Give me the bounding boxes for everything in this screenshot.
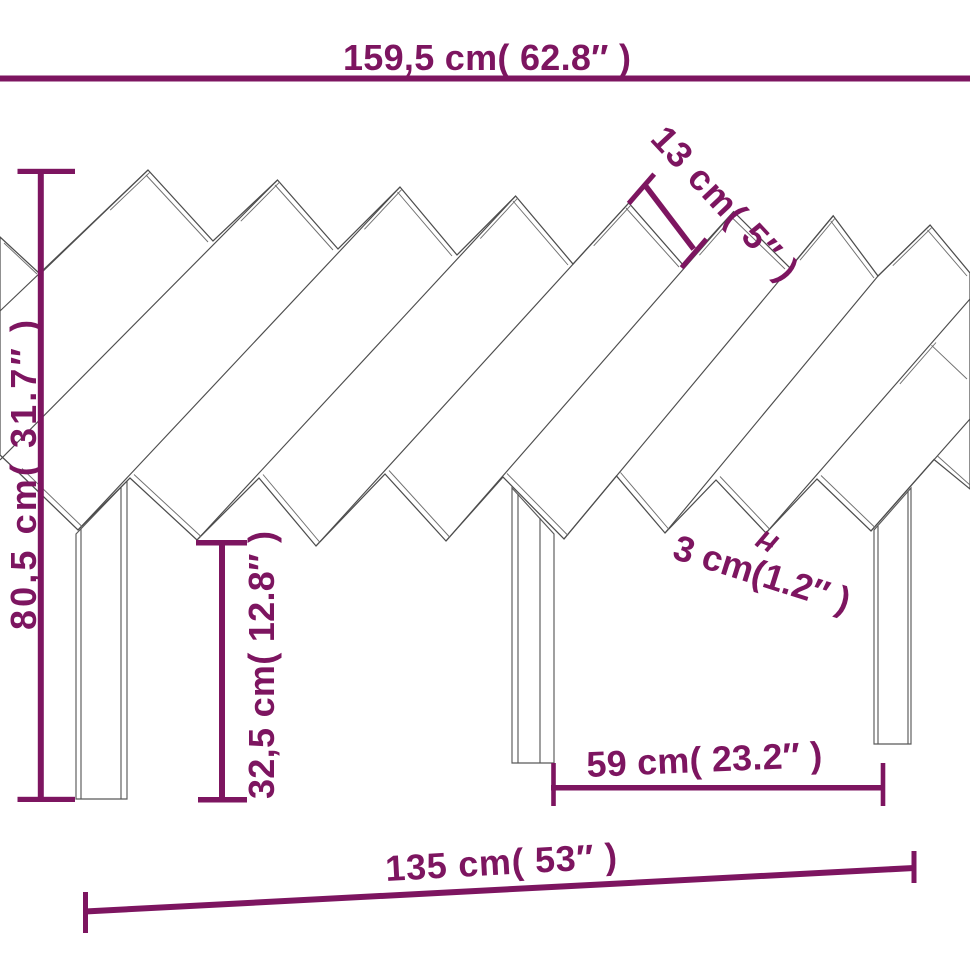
svg-text:32,5 cm( 12.8″ ): 32,5 cm( 12.8″ ) [241, 531, 282, 799]
svg-text:159,5 cm( 62.8″ ): 159,5 cm( 62.8″ ) [343, 37, 631, 78]
